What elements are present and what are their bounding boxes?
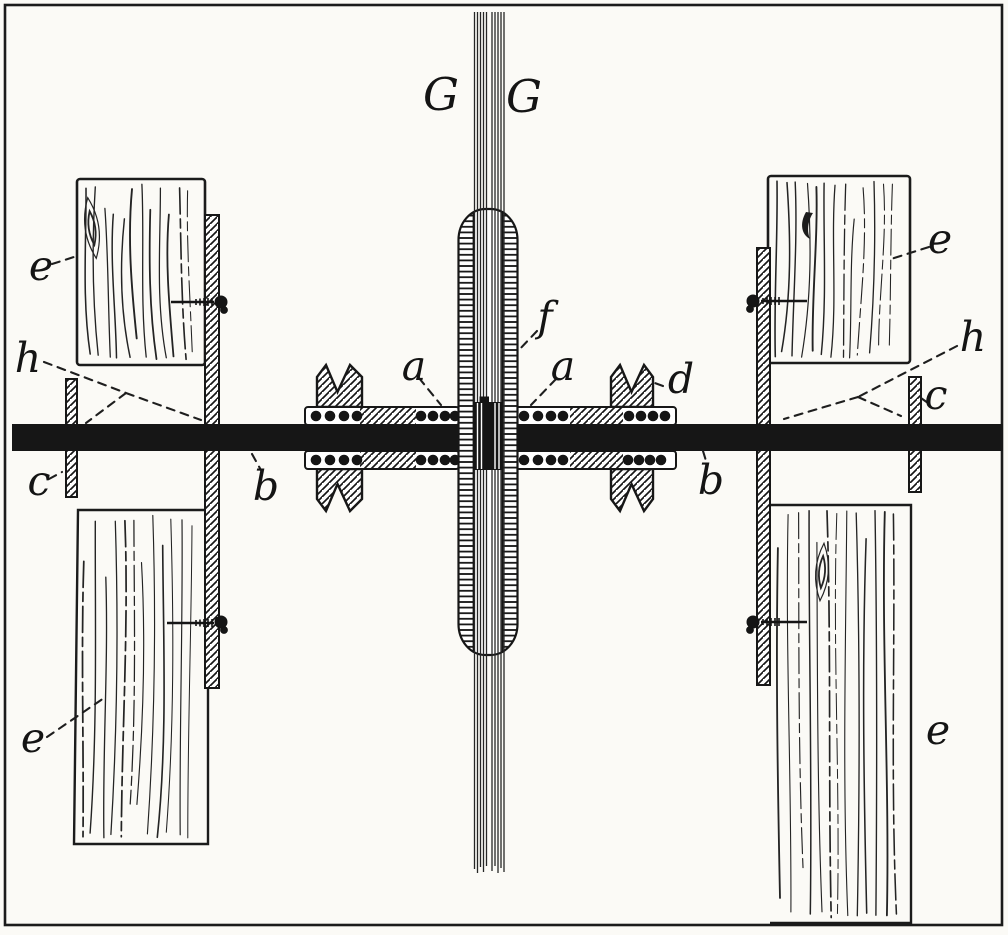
figure-canvas: G G f a a d b b c c h h e e e e — [0, 0, 1008, 935]
label-b-left: b — [253, 462, 279, 510]
label-d: d — [668, 355, 694, 403]
bearing-strip-upper-right — [515, 407, 676, 425]
bearing-strip-lower-left — [305, 451, 460, 469]
label-g-right: G — [506, 70, 542, 123]
label-a-right: a — [551, 342, 575, 390]
label-h-right: h — [960, 313, 986, 361]
engraving-svg: G G f a a d b b c c h h e e e e — [0, 0, 1008, 935]
label-e-bottom-right: e — [926, 706, 950, 754]
center-bar-window — [474, 397, 503, 471]
label-c-right: c — [925, 371, 948, 419]
label-c-left: c — [28, 457, 51, 505]
label-a-left: a — [402, 342, 426, 390]
label-e-top-right: e — [928, 215, 952, 263]
bearing-strip-upper-left — [305, 407, 460, 425]
bearing-strip-lower-right — [515, 451, 676, 469]
label-e-bottom-left: e — [21, 714, 45, 762]
label-e-top-left: e — [29, 242, 53, 290]
label-g-left: G — [423, 68, 459, 121]
label-h-left: h — [15, 334, 41, 382]
label-b-right: b — [698, 456, 724, 504]
